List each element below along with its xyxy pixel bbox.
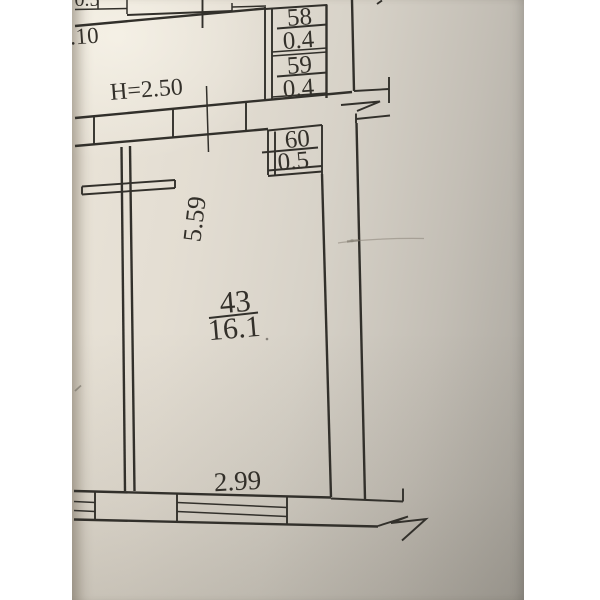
room-area-label: 16.1 [207,310,262,347]
wall-break-symbol [356,116,390,120]
window-symbol [177,503,287,508]
stub-partition [82,180,175,195]
dimension-tick [207,86,209,152]
dimension-top-width: 0.10 [72,23,99,51]
wall-break-symbol [354,89,389,91]
pencil-smudge [350,239,353,242]
closet-60-area: 0.5 [277,147,310,177]
closet-column-58-59: 58 0.4 59 0.4 [265,3,327,103]
paper-sheet: 0.5 0.10 58 0.4 59 0.4 [72,0,524,600]
wall-break-symbol [331,499,403,502]
wall-line [232,6,266,7]
room-43-labels: 5.59 5.59 43 16.1 2.99 [72,195,268,498]
dimension-top-box-clipped: 0.5 [75,0,100,11]
wall-band-bottom-line [75,129,268,146]
interior-wall-left [122,146,135,491]
wall-inner-line [74,491,331,498]
corridor-wall-line [75,9,265,27]
floor-plan-drawing: 0.5 0.10 58 0.4 59 0.4 [72,0,524,600]
dimension-room-depth: 5.59 [177,195,211,244]
wall-break-symbol [378,517,426,541]
wall-outer-line [74,520,378,527]
window-symbol [177,512,287,517]
dimension-left-clipped: 5.59 [72,200,76,249]
window-symbol [74,502,95,503]
wall-outer-line [357,123,366,499]
wall-line [377,1,382,5]
ink-dot [266,338,269,341]
right-exterior-wall [322,0,390,499]
wall-line [130,146,135,491]
top-wall-fragments: 0.5 0.10 [72,0,266,50]
closet-60: 60 0.5 [262,125,322,176]
partition-line [82,188,175,195]
partition-line [82,180,175,187]
bottom-exterior-wall [74,489,426,541]
window-symbol [74,511,95,512]
pencil-scratch [75,386,81,392]
wall-break-symbol [341,102,380,112]
wall-inner-line [322,174,331,497]
wall-line [122,147,126,491]
wall-line [352,0,354,91]
dimension-bottom-width: 2.99 [213,465,262,497]
photo-background: 0.5 0.10 58 0.4 59 0.4 [0,0,600,600]
ceiling-height-label: H=2.50 [109,74,184,106]
